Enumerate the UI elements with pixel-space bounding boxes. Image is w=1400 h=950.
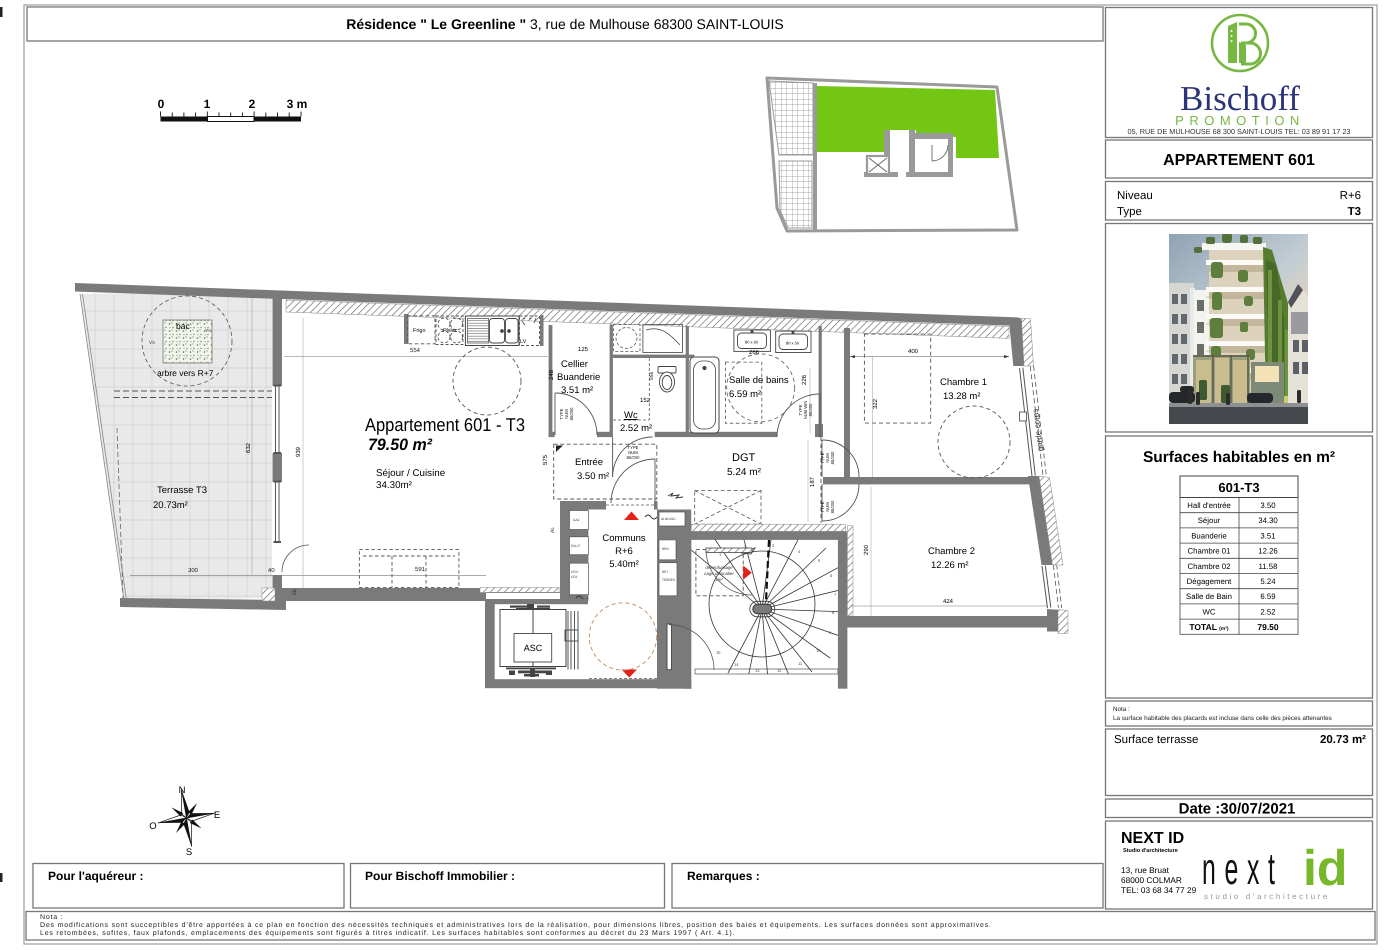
svg-text:601-T3: 601-T3 [1218, 480, 1259, 495]
svg-text:T3: T3 [1348, 206, 1361, 218]
svg-text:VS: VS [205, 328, 211, 333]
svg-text:Entrée: Entrée [575, 457, 603, 468]
svg-text:12.26: 12.26 [1258, 547, 1278, 556]
svg-text:PROMOTION: PROMOTION [1175, 113, 1305, 128]
svg-text:20.73m²: 20.73m² [153, 500, 188, 511]
svg-text:424: 424 [943, 598, 954, 605]
svg-text:Salle de Bain: Salle de Bain [1186, 592, 1232, 601]
svg-text:Chambre 02: Chambre 02 [1188, 562, 1231, 571]
svg-text:F.elec: F.elec [443, 328, 458, 334]
svg-text:575: 575 [542, 454, 549, 465]
svg-text:ASC: ASC [524, 643, 543, 653]
svg-text:REN: REN [662, 547, 669, 551]
svg-text:CFO: CFO [571, 570, 578, 574]
svg-text:125: 125 [578, 346, 589, 353]
svg-text:VS: VS [149, 340, 155, 345]
svg-text:34.30: 34.30 [1258, 516, 1278, 525]
svg-text:Chambre 2: Chambre 2 [928, 546, 975, 557]
svg-text:GAZ: GAZ [573, 518, 580, 522]
svg-text:248: 248 [548, 369, 555, 380]
svg-text:Chambre 01: Chambre 01 [1188, 547, 1231, 556]
svg-text:322: 322 [872, 398, 879, 409]
svg-text:EAU F: EAU F [571, 544, 580, 548]
svg-text:Cellier: Cellier [561, 359, 588, 370]
svg-text:Surface terrasse: Surface terrasse [1114, 734, 1198, 746]
svg-text:La surface habitable des placa: La surface habitable des placards est in… [1113, 715, 1332, 722]
svg-text:TEL: 03 68 34 77 29: TEL: 03 68 34 77 29 [1121, 885, 1197, 895]
svg-text:Les retombées, sofites, faux p: Les retombées, sofites, faux plafonds, e… [40, 929, 735, 937]
svg-text:ALIM ASC: ALIM ASC [661, 517, 676, 521]
svg-text:Pour Bischoff Immobilier :: Pour Bischoff Immobilier : [365, 869, 515, 883]
svg-text:Type: Type [1117, 206, 1142, 218]
svg-text:80/200: 80/200 [830, 500, 835, 513]
svg-text:Nota :: Nota : [1113, 706, 1130, 713]
svg-text:956: 956 [649, 371, 655, 380]
svg-text:Studio d'architecture: Studio d'architecture [1123, 848, 1178, 854]
svg-text:400: 400 [908, 348, 919, 355]
svg-text:NEXT ID: NEXT ID [1121, 830, 1184, 847]
svg-text:3 m: 3 m [287, 97, 308, 111]
svg-text:10: 10 [816, 648, 821, 653]
svg-text:APPARTEMENT 601: APPARTEMENT 601 [1163, 152, 1315, 169]
svg-text:20: 20 [292, 589, 298, 595]
svg-text:E: E [214, 810, 220, 821]
svg-text:12.26 m²: 12.26 m² [931, 560, 969, 571]
svg-text:5.24 m²: 5.24 m² [727, 467, 762, 478]
svg-text:Remarques :: Remarques : [687, 869, 760, 883]
svg-text:554: 554 [410, 347, 421, 354]
svg-text:6.59: 6.59 [1260, 592, 1275, 601]
svg-text:Buanderie: Buanderie [557, 372, 600, 383]
svg-text:Séjour / Cuisine: Séjour / Cuisine [376, 468, 446, 479]
svg-text:RET: RET [662, 570, 668, 574]
svg-text:N: N [179, 785, 186, 796]
svg-text:next: next [1202, 845, 1284, 894]
svg-text:CFA: CFA [571, 575, 578, 579]
svg-text:LV: LV [520, 339, 527, 345]
svg-text:Date :30/07/2021: Date :30/07/2021 [1179, 801, 1296, 818]
svg-text:O: O [149, 821, 156, 832]
svg-text:68000 COLMAR: 68000 COLMAR [1121, 875, 1182, 885]
svg-text:3.50: 3.50 [1260, 501, 1276, 510]
svg-text:40: 40 [268, 567, 275, 574]
svg-text:2: 2 [249, 97, 256, 111]
svg-text:2.52 m²: 2.52 m² [620, 423, 652, 434]
svg-text:152: 152 [640, 397, 651, 404]
svg-text:WC: WC [1203, 607, 1216, 616]
svg-text:S: S [186, 847, 192, 858]
svg-text:05, RUE DE MULHOUSE 68 300 SAI: 05, RUE DE MULHOUSE 68 300 SAINT-LOUIS T… [1128, 127, 1351, 136]
svg-text:13.28 m²: 13.28 m² [943, 391, 981, 402]
svg-text:id: id [1303, 840, 1347, 896]
svg-text:Niveau: Niveau [1117, 190, 1153, 202]
svg-text:80 x 60: 80 x 60 [745, 340, 759, 345]
svg-text:80/200: 80/200 [569, 407, 574, 420]
svg-text:R+6: R+6 [615, 546, 633, 557]
svg-text:studio d'architecture: studio d'architecture [1204, 892, 1330, 901]
svg-text:R+6: R+6 [1340, 190, 1361, 202]
svg-text:3.51: 3.51 [1260, 531, 1275, 540]
svg-text:632: 632 [245, 442, 252, 453]
svg-text:Résidence " Le Greenline " 3: Résidence " Le Greenline " 3, rue de Mul… [346, 16, 783, 32]
svg-text:cage d'escalier: cage d'escalier [704, 571, 734, 576]
svg-text:Salle de bains: Salle de bains [729, 375, 789, 386]
svg-text:80/200: 80/200 [808, 403, 813, 416]
svg-text:79.50: 79.50 [1257, 622, 1279, 632]
svg-text:Appartement 601 - T3: Appartement 601 - T3 [365, 414, 525, 435]
svg-text:13: 13 [755, 668, 760, 673]
svg-text:Wc: Wc [624, 410, 638, 421]
svg-text:2.52: 2.52 [1260, 607, 1275, 616]
svg-text:34.30m²: 34.30m² [376, 480, 413, 491]
svg-text:939: 939 [295, 446, 302, 457]
svg-text:0: 0 [158, 97, 165, 111]
svg-text:Des modifications sont succept: Des modifications sont succeptibles d'êt… [40, 921, 992, 929]
svg-text:Hall d'entrée: Hall d'entrée [1187, 501, 1231, 510]
svg-text:290: 290 [863, 544, 870, 555]
svg-text:15: 15 [716, 650, 721, 655]
svg-text:Dégagement: Dégagement [1187, 577, 1232, 586]
svg-text:5.24: 5.24 [1260, 577, 1276, 586]
svg-text:arbre vers R+7: arbre vers R+7 [157, 368, 214, 378]
svg-text:79.50 m²: 79.50 m² [368, 436, 432, 454]
svg-text:80 x 50: 80 x 50 [786, 341, 800, 346]
svg-text:1: 1 [204, 97, 211, 111]
svg-text:6.59 m²: 6.59 m² [729, 389, 761, 400]
svg-text:Pour l'aquéreur :: Pour l'aquéreur : [48, 869, 144, 883]
svg-text:12: 12 [777, 668, 782, 673]
svg-text:226: 226 [801, 374, 808, 385]
svg-text:Frigo: Frigo [413, 328, 426, 334]
svg-text:80/200: 80/200 [627, 455, 640, 460]
svg-text:20.73 m²: 20.73 m² [1320, 734, 1366, 746]
svg-text:5.40m²: 5.40m² [609, 559, 639, 570]
svg-text:DGT: DGT [732, 452, 756, 464]
svg-text:80/200: 80/200 [830, 451, 835, 464]
svg-text:Buanderie: Buanderie [1191, 531, 1227, 540]
svg-text:Surfaces habitables en m²: Surfaces habitables en m² [1143, 449, 1335, 466]
svg-text:13, rue Bruat: 13, rue Bruat [1121, 865, 1170, 875]
svg-text:Chambre 1: Chambre 1 [940, 377, 987, 388]
svg-text:3.50 m²: 3.50 m² [577, 471, 609, 482]
svg-text:266: 266 [749, 349, 760, 356]
svg-text:Nota :: Nota : [40, 914, 63, 921]
svg-text:591: 591 [415, 566, 426, 573]
svg-text:14: 14 [734, 662, 739, 667]
svg-text:Séjour: Séjour [1198, 516, 1221, 525]
svg-text:300: 300 [188, 567, 199, 574]
svg-text:AL: AL [550, 527, 556, 533]
svg-text:11.58: 11.58 [1259, 562, 1278, 571]
svg-text:TERRES: TERRES [662, 578, 675, 582]
svg-text:Communs: Communs [602, 533, 646, 544]
svg-text:187: 187 [809, 476, 816, 487]
svg-text:bac: bac [176, 321, 190, 331]
svg-text:Terrasse T3: Terrasse T3 [157, 485, 207, 496]
